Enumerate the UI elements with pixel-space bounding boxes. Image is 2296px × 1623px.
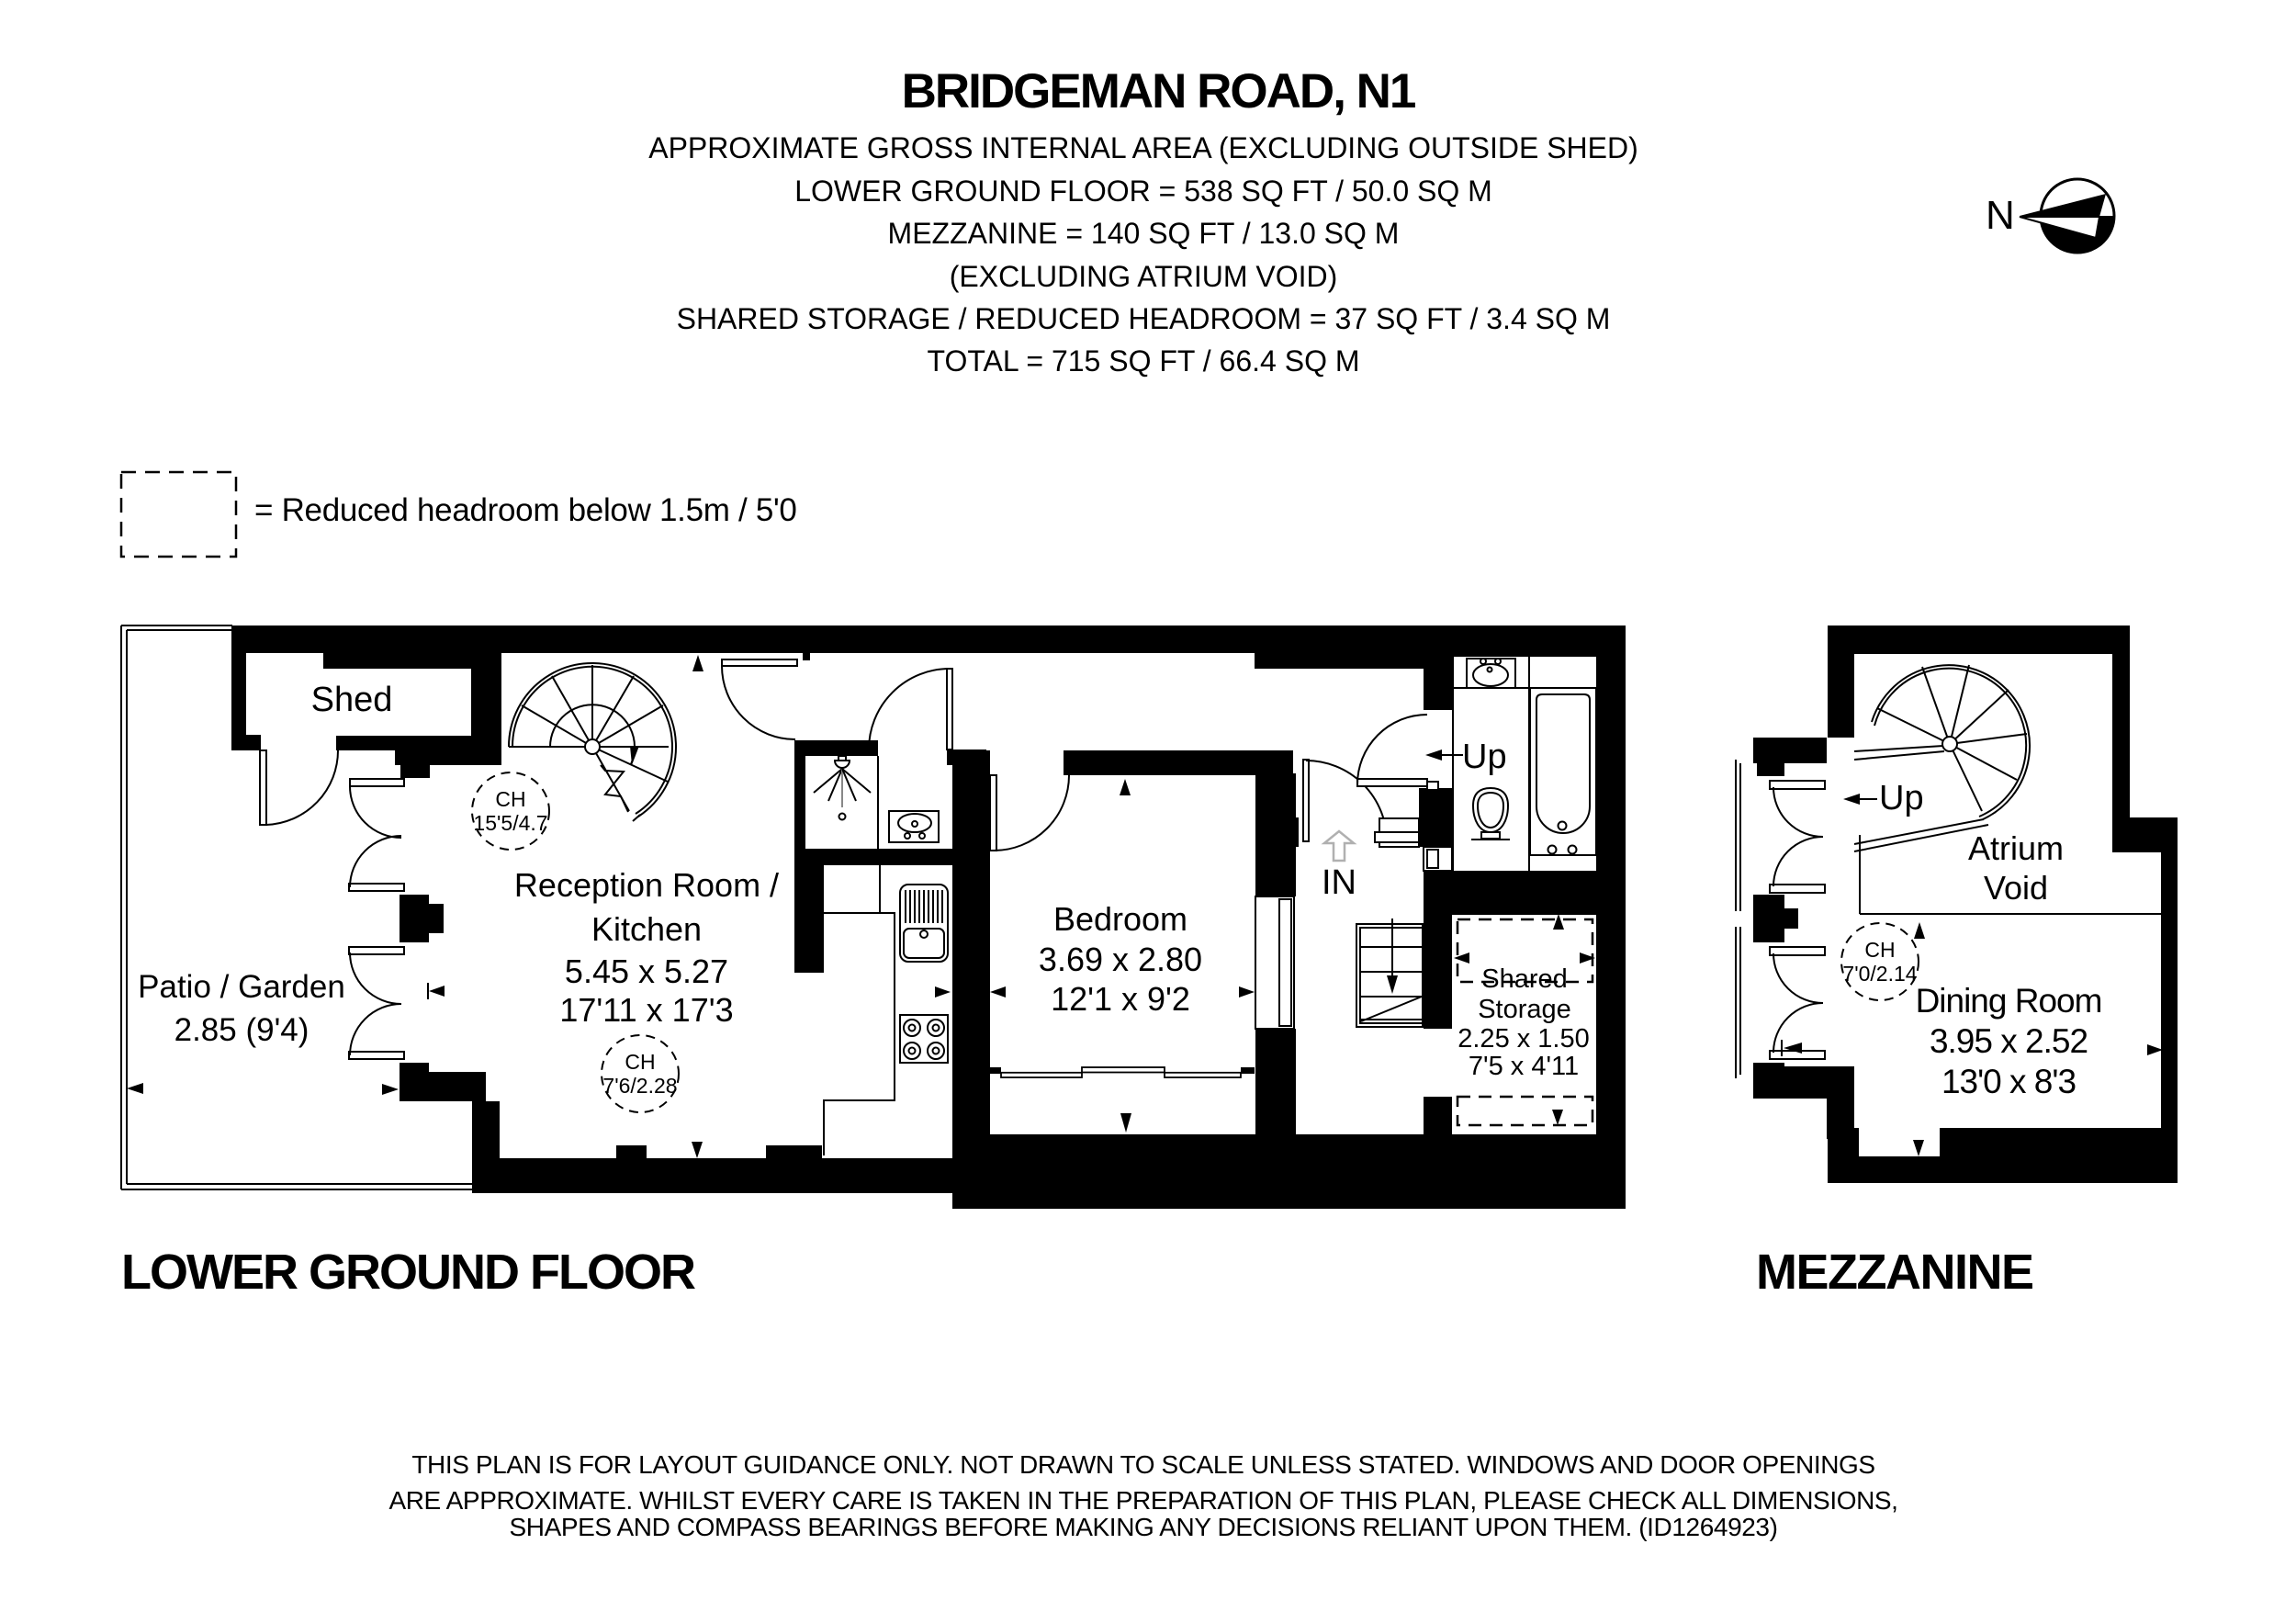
svg-text:15'5/4.7: 15'5/4.7 (473, 811, 547, 835)
svg-text:Kitchen: Kitchen (591, 910, 702, 948)
svg-text:CH: CH (495, 787, 525, 811)
svg-text:IN: IN (1322, 863, 1356, 902)
svg-text:7'6/2.28: 7'6/2.28 (602, 1074, 677, 1098)
svg-text:TOTAL = 715 SQ FT / 66.4 SQ M: TOTAL = 715 SQ FT / 66.4 SQ M (928, 344, 1360, 378)
svg-text:Up: Up (1462, 738, 1507, 776)
svg-text:3.95 x 2.52: 3.95 x 2.52 (1930, 1022, 2088, 1060)
svg-text:Dining Room: Dining Room (1916, 982, 2102, 1020)
svg-text:Atrium: Atrium (1968, 829, 2064, 867)
svg-text:12'1 x 9'2: 12'1 x 9'2 (1051, 980, 1190, 1018)
svg-text:2.25 x 1.50: 2.25 x 1.50 (1458, 1024, 1590, 1054)
svg-text:MEZZANINE: MEZZANINE (1756, 1245, 2032, 1300)
svg-text:13'0 x 8'3: 13'0 x 8'3 (1941, 1063, 2076, 1100)
svg-text:CH: CH (1864, 938, 1895, 962)
svg-text:Shared: Shared (1481, 964, 1568, 994)
svg-text:SHAPES AND COMPASS BEARINGS BE: SHAPES AND COMPASS BEARINGS BEFORE MAKIN… (509, 1513, 1777, 1541)
svg-text:= Reduced headroom below 1.5m: = Reduced headroom below 1.5m / 5'0 (254, 492, 797, 528)
svg-text:17'11 x 17'3: 17'11 x 17'3 (559, 991, 733, 1029)
svg-text:Void: Void (1984, 869, 2048, 907)
svg-text:MEZZANINE = 140 SQ FT / 13.0 S: MEZZANINE = 140 SQ FT / 13.0 SQ M (888, 217, 1400, 250)
svg-text:7'5 x 4'11: 7'5 x 4'11 (1469, 1052, 1579, 1081)
svg-text:Bedroom: Bedroom (1053, 900, 1187, 938)
svg-text:BRIDGEMAN ROAD, N1: BRIDGEMAN ROAD, N1 (902, 64, 1415, 118)
svg-text:APPROXIMATE GROSS INTERNAL ARE: APPROXIMATE GROSS INTERNAL AREA (EXCLUDI… (648, 131, 1638, 164)
svg-text:(EXCLUDING ATRIUM VOID): (EXCLUDING ATRIUM VOID) (950, 260, 1338, 293)
svg-text:2.85 (9'4): 2.85 (9'4) (174, 1012, 310, 1048)
svg-text:LOWER GROUND FLOOR = 538 SQ FT: LOWER GROUND FLOOR = 538 SQ FT / 50.0 SQ… (794, 175, 1492, 208)
svg-text:Storage: Storage (1478, 995, 1571, 1024)
svg-text:Shed: Shed (311, 681, 393, 719)
svg-text:7'0/2.14: 7'0/2.14 (1842, 962, 1917, 986)
svg-text:SHARED STORAGE / REDUCED HEADR: SHARED STORAGE / REDUCED HEADROOM = 37 S… (677, 302, 1611, 335)
svg-text:N: N (1986, 193, 2015, 238)
svg-text:3.69 x 2.80: 3.69 x 2.80 (1039, 941, 1202, 978)
svg-text:Up: Up (1879, 779, 1924, 817)
svg-text:ARE APPROXIMATE. WHILST EVERY: ARE APPROXIMATE. WHILST EVERY CARE IS TA… (388, 1486, 1897, 1515)
svg-text:CH: CH (625, 1050, 655, 1074)
svg-text:LOWER GROUND FLOOR: LOWER GROUND FLOOR (121, 1245, 695, 1300)
svg-text:Reception Room /: Reception Room / (514, 866, 779, 904)
svg-text:Patio / Garden: Patio / Garden (138, 969, 345, 1005)
svg-text:5.45 x 5.27: 5.45 x 5.27 (565, 952, 728, 990)
svg-text:THIS PLAN IS FOR LAYOUT GUIDAN: THIS PLAN IS FOR LAYOUT GUIDANCE ONLY. N… (411, 1450, 1874, 1479)
